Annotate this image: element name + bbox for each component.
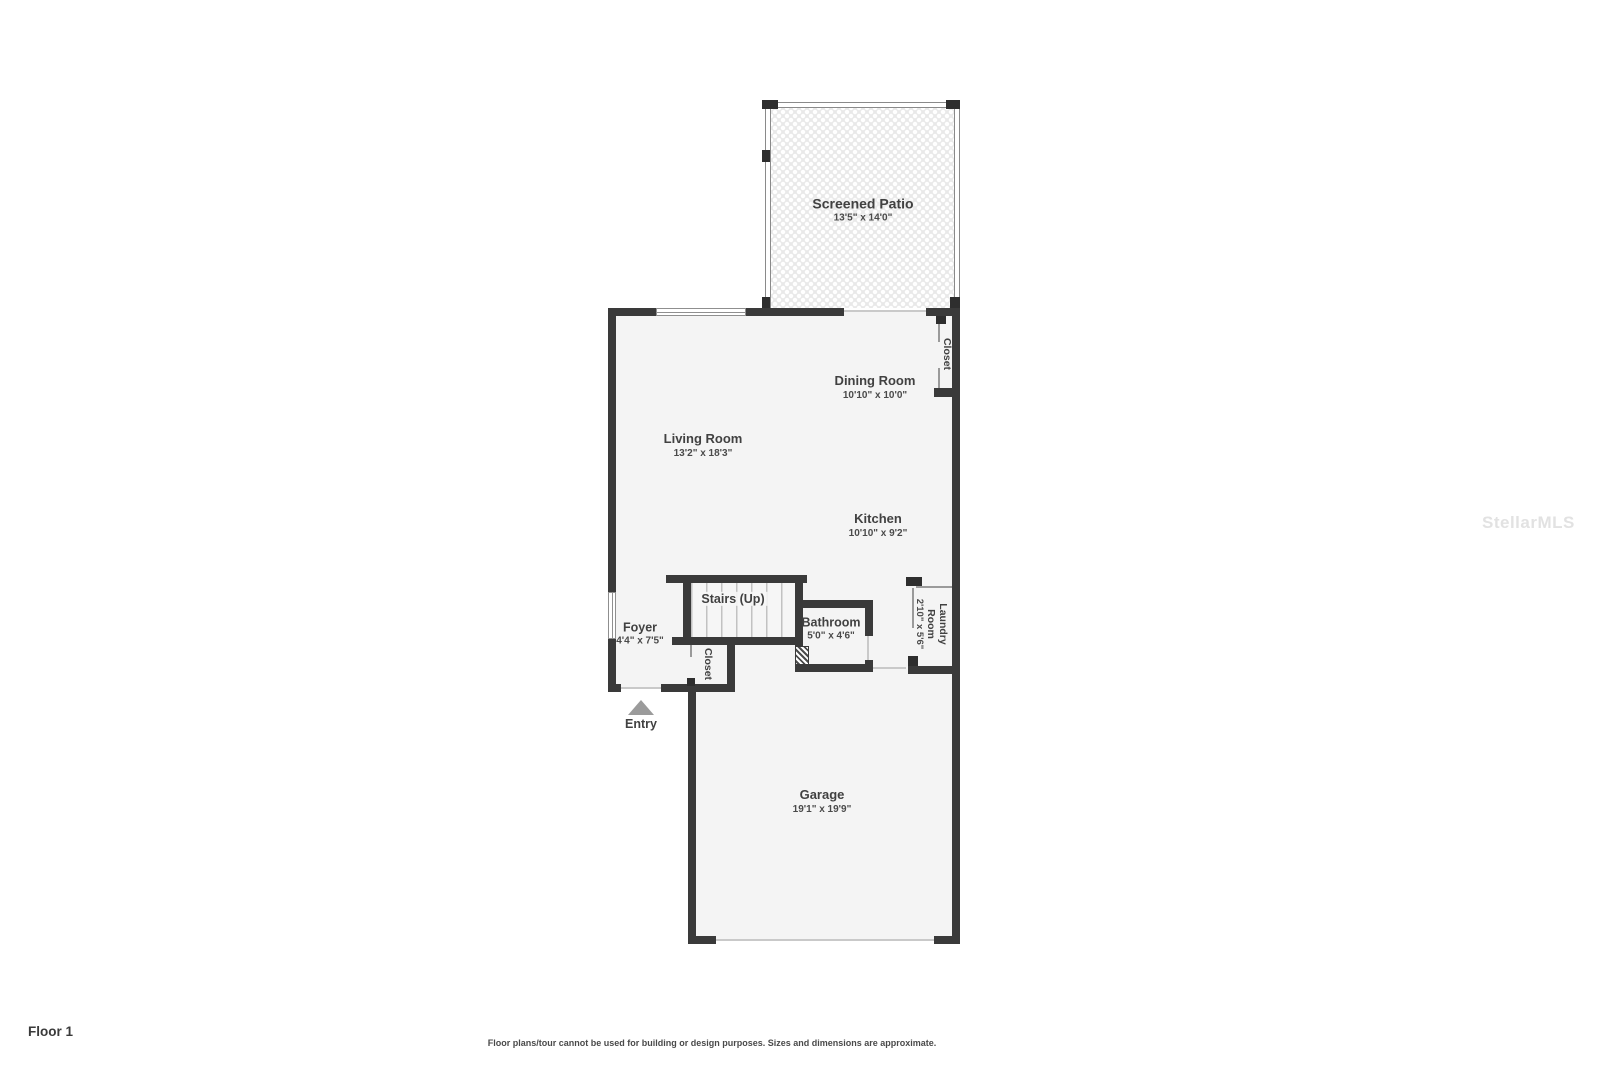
patio-screen-wall-top [765, 102, 960, 108]
room-name: Screened Patio [812, 195, 913, 211]
wall-segment [683, 583, 691, 645]
room-label-garage: Garage 19'1" x 19'9" [793, 788, 852, 816]
room-name: Living Room [664, 432, 743, 447]
floor-plan-page: Screened Patio 13'5" x 14'0" Dining Room… [0, 0, 1600, 1066]
room-name: Laundry Room [925, 597, 949, 651]
patio-screen-wall-left [765, 106, 771, 308]
wall-segment [688, 936, 716, 944]
wall-segment [908, 666, 960, 674]
patio-post [762, 297, 770, 308]
room-dims: 10'10" x 9'2" [849, 527, 908, 540]
disclaimer-text: Floor plans/tour cannot be used for buil… [488, 1038, 937, 1048]
closet-door-jamb [690, 645, 692, 657]
patio-post [946, 100, 960, 109]
room-dims: 2'10" x 5'6" [913, 597, 925, 651]
room-label-laundry-room: Laundry Room 2'10" x 5'6" [913, 597, 949, 651]
wall-segment [608, 684, 621, 692]
patio-post [762, 100, 778, 109]
wall-segment [672, 637, 798, 645]
wall-segment [666, 575, 807, 583]
closet-door-jamb [938, 368, 940, 388]
slider-door-opening [844, 310, 926, 312]
room-label-screened-patio: Screened Patio 13'5" x 14'0" [812, 195, 913, 224]
room-name: Stairs (Up) [698, 592, 767, 606]
room-dims: 10'10" x 10'0" [835, 389, 916, 402]
room-name: Entry [625, 717, 657, 731]
patio-post [950, 297, 960, 308]
wall-segment [688, 692, 696, 944]
wall-segment [795, 664, 873, 672]
window [656, 308, 746, 316]
wall-segment [661, 684, 735, 692]
room-label-living-room: Living Room 13'2" x 18'3" [664, 432, 743, 460]
wall-segment [795, 600, 873, 608]
closet-wall-post [687, 678, 695, 686]
room-label-dining-room: Dining Room 10'10" x 10'0" [835, 374, 916, 402]
wall-segment [865, 608, 873, 636]
wall-segment [952, 308, 960, 944]
laundry-wall-post [906, 577, 922, 586]
room-name: Garage [793, 788, 852, 803]
room-label-kitchen: Kitchen 10'10" x 9'2" [849, 512, 908, 540]
room-name: Kitchen [849, 512, 908, 527]
room-name: Foyer [616, 620, 664, 634]
wall-segment [746, 308, 844, 316]
entry-door-opening [621, 687, 661, 689]
room-label-entry: Entry [625, 717, 657, 731]
room-label-bathroom: Bathroom 5'0" x 4'6" [801, 615, 860, 642]
patio-post [762, 150, 770, 162]
wall-segment [865, 660, 873, 672]
room-name: Closet [702, 648, 714, 680]
garage-vehicle-door [716, 939, 934, 941]
garage-door-opening [873, 667, 906, 669]
entry-arrow-icon [628, 700, 654, 715]
wall-segment [934, 388, 960, 397]
laundry-wall-thin [916, 586, 952, 588]
room-name: Dining Room [835, 374, 916, 389]
floor-number-label: Floor 1 [28, 1024, 73, 1039]
room-label-foyer: Foyer 4'4" x 7'5" [616, 620, 664, 647]
window [608, 592, 616, 639]
room-label-closet-upper: Closet [941, 338, 953, 370]
room-label-closet-foyer: Closet [702, 648, 714, 680]
wall-segment [934, 936, 960, 944]
bathroom-door-opening [867, 636, 869, 660]
stellar-mls-watermark: StellarMLS [1482, 513, 1575, 533]
room-dims: 4'4" x 7'5" [616, 635, 664, 648]
room-name: Bathroom [801, 615, 860, 629]
laundry-wall-post [908, 656, 918, 666]
room-label-stairs: Stairs (Up) [698, 592, 767, 606]
wall-segment [608, 308, 616, 592]
room-dims: 13'5" x 14'0" [812, 212, 913, 225]
room-name: Closet [941, 338, 953, 370]
room-dims: 19'1" x 19'9" [793, 803, 852, 816]
patio-screen-wall-right [954, 106, 960, 308]
wall-segment [727, 645, 735, 692]
room-dims: 13'2" x 18'3" [664, 447, 743, 460]
closet-wall-post [936, 316, 946, 324]
room-dims: 5'0" x 4'6" [801, 630, 860, 643]
closet-door-jamb [938, 324, 940, 342]
